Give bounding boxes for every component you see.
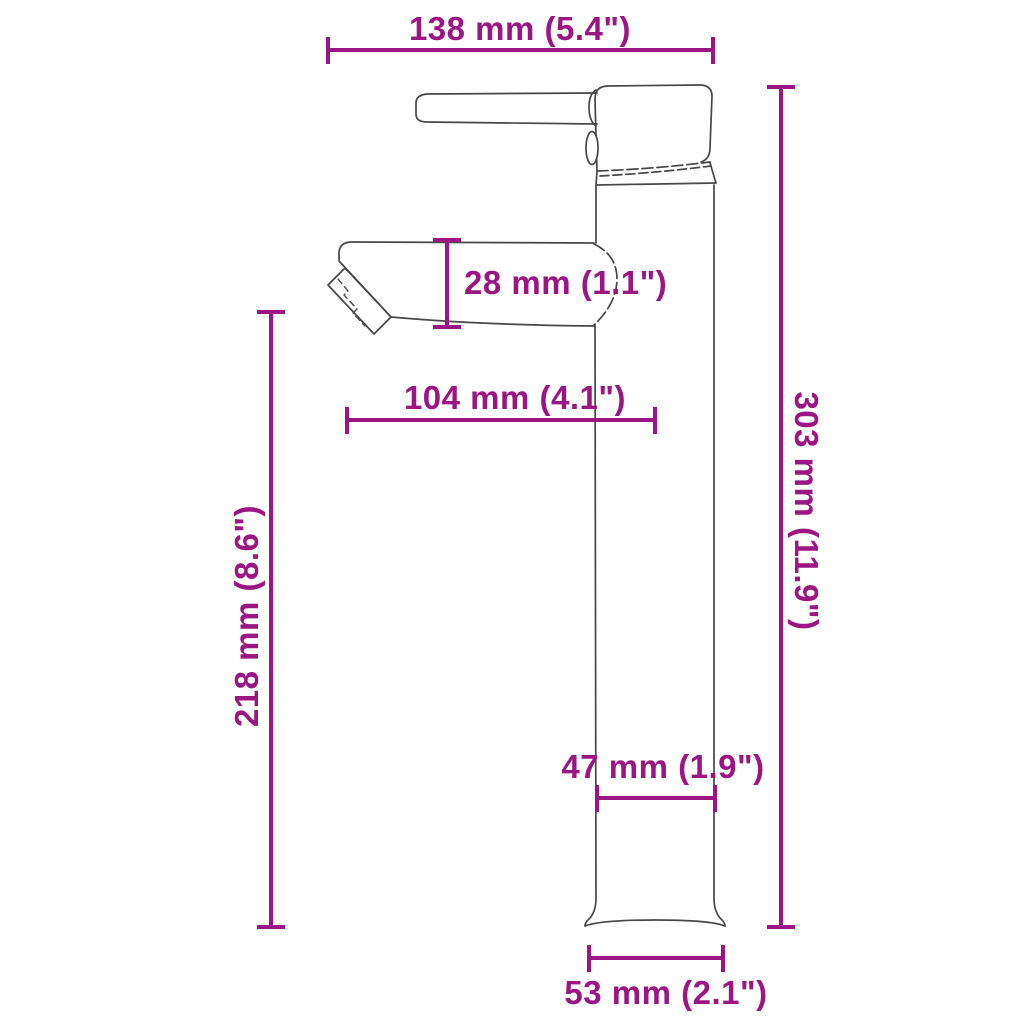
label-spout-reach: 104 mm (4.1") (404, 379, 626, 416)
dimension-labels: 138 mm (5.4") 28 mm (1.1") 104 mm (4.1")… (228, 10, 825, 1011)
faucet-body-right (714, 185, 725, 926)
dimension-base-width (589, 945, 723, 972)
label-top-width: 138 mm (5.4") (409, 10, 631, 47)
faucet-head-bottom (597, 162, 710, 171)
label-total-height: 303 mm (11.9") (788, 391, 825, 630)
faucet-collar-bottom (596, 183, 716, 185)
faucet-pivot-screw (586, 132, 598, 165)
label-spout-to-base: 218 mm (8.6") (228, 505, 265, 727)
label-base-width: 53 mm (2.1") (564, 974, 767, 1011)
faucet-head (595, 85, 712, 171)
faucet-aerator (328, 268, 391, 334)
dimension-spout-height (433, 240, 461, 327)
label-spout-height: 28 mm (1.1") (464, 264, 667, 301)
label-body-width: 47 mm (1.9") (561, 748, 764, 785)
faucet-base-bottom (585, 920, 725, 926)
faucet-collar-left (596, 172, 597, 185)
dimension-diagram: 138 mm (5.4") 28 mm (1.1") 104 mm (4.1")… (0, 0, 1024, 1024)
diagram-svg: 138 mm (5.4") 28 mm (1.1") 104 mm (4.1")… (0, 0, 1024, 1024)
faucet-handle (416, 93, 597, 124)
dimension-body-width (597, 785, 715, 812)
